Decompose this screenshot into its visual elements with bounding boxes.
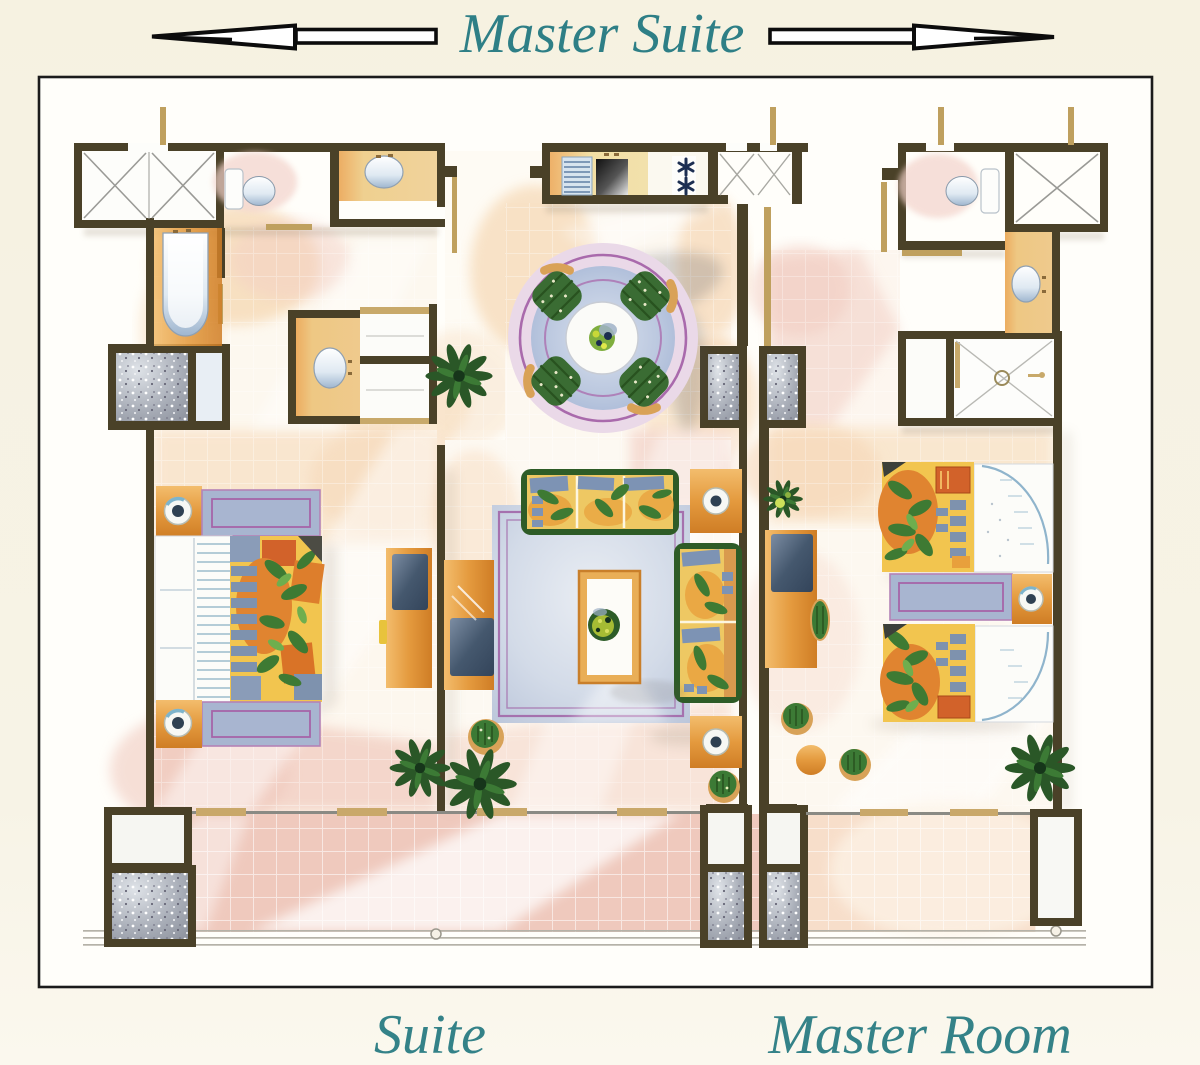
svg-text:Master Suite: Master Suite <box>459 3 745 65</box>
svg-text:Suite: Suite <box>374 1004 486 1065</box>
svg-text:Master Room: Master Room <box>767 1004 1071 1065</box>
